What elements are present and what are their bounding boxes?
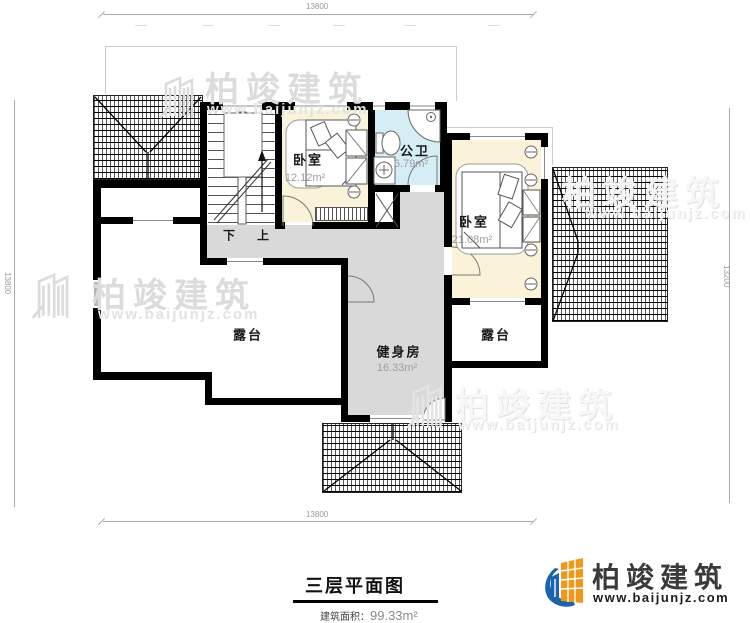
area-summary-value: 99.33m² xyxy=(370,608,418,623)
wall-segment xyxy=(312,222,375,229)
wall-segment xyxy=(341,415,370,422)
wall-segment xyxy=(101,217,133,224)
wall-segment xyxy=(541,133,548,147)
watermark-building-icon xyxy=(30,262,74,320)
window xyxy=(373,102,385,110)
dim-line-top xyxy=(103,14,533,15)
cabinet-striped xyxy=(315,207,368,221)
watermark-brand: 柏竣建筑 xyxy=(92,268,256,317)
wall-segment xyxy=(205,398,348,405)
dim-subtick xyxy=(333,25,345,26)
dim-line-left xyxy=(14,100,15,507)
hallway-floor xyxy=(400,192,444,225)
wall-segment xyxy=(200,258,227,265)
dim-subtick xyxy=(488,25,500,26)
wall-segment xyxy=(93,372,212,380)
dim-subtick xyxy=(404,25,416,26)
window xyxy=(470,133,525,140)
bedroom1-area: 12.12m² xyxy=(285,172,325,184)
roof-right xyxy=(552,167,668,322)
dim-subtick xyxy=(202,25,214,26)
terrace-right-label: 露台 xyxy=(481,325,511,344)
wall-segment xyxy=(275,222,285,229)
watermark-url: www.baijunjz.com xyxy=(98,306,259,323)
stair-treads xyxy=(208,114,275,224)
eave-line xyxy=(447,127,553,128)
watermark-building-icon xyxy=(158,66,198,120)
window xyxy=(541,147,548,179)
wall-segment xyxy=(275,102,282,229)
window xyxy=(223,102,262,110)
watermark-brand: 柏竣建筑 xyxy=(455,378,619,427)
eave-line xyxy=(456,46,457,101)
dim-line-right xyxy=(729,108,730,503)
eave-line xyxy=(552,127,553,165)
terrace-left-label: 露台 xyxy=(233,325,263,344)
stair-down-label: 下 xyxy=(223,227,237,244)
bathroom-label: 公卫 xyxy=(400,141,430,160)
stair-up-label: 上 xyxy=(257,227,271,244)
window xyxy=(295,102,347,110)
door-panel xyxy=(94,282,100,306)
window xyxy=(410,102,435,110)
dim-tick xyxy=(530,518,537,525)
logo-url: www.baijunjz.com xyxy=(593,590,729,605)
dim-top-label: 13800 xyxy=(306,2,328,11)
wall-segment xyxy=(93,308,101,380)
gym-label: 健身房 xyxy=(376,342,421,361)
dim-left-label: 13800 xyxy=(3,272,12,294)
eave-line xyxy=(105,46,457,47)
wall-segment xyxy=(541,179,548,305)
dim-right-label: 13200 xyxy=(722,265,731,287)
dim-subtick xyxy=(135,25,147,26)
wall-segment xyxy=(93,180,205,188)
bathroom-area: 6.79m² xyxy=(394,158,428,170)
window xyxy=(470,298,525,305)
wall-segment xyxy=(444,298,472,305)
area-summary: 建筑面积：99.33m² xyxy=(320,608,418,623)
wall-segment xyxy=(444,361,548,368)
bedroom2-area: 21.08m² xyxy=(452,234,492,246)
wall-segment xyxy=(368,222,400,229)
wall-segment xyxy=(263,258,348,265)
wall-segment xyxy=(368,185,410,192)
wall-segment xyxy=(523,298,548,305)
floorplan-canvas: 13800 13800 13800 13200 xyxy=(0,0,750,623)
gym-area: 16.33m² xyxy=(377,362,417,374)
bedroom2-label: 卧室 xyxy=(459,212,489,231)
dim-tick xyxy=(530,11,537,18)
watermark-building-icon xyxy=(405,374,447,430)
wall-segment xyxy=(541,305,548,368)
logo-building-icon xyxy=(543,555,589,609)
wall-segment xyxy=(368,102,375,229)
area-summary-label: 建筑面积： xyxy=(320,612,370,623)
sheet-title: 三层平面图 xyxy=(305,572,405,598)
dim-bottom-label: 13800 xyxy=(306,510,328,519)
bedroom1-label: 卧室 xyxy=(293,150,323,169)
dim-line-bottom xyxy=(103,521,533,522)
hallway-floor xyxy=(207,225,444,258)
roof-bottom xyxy=(322,423,462,493)
wall-segment xyxy=(93,180,101,280)
wall-segment xyxy=(444,133,452,247)
watermark-url: www.baijunjz.com xyxy=(458,416,619,433)
window xyxy=(227,258,263,265)
title-underline xyxy=(293,600,438,603)
wall-segment xyxy=(173,217,205,224)
window xyxy=(133,217,173,224)
dim-subtick xyxy=(268,25,280,26)
eave-line xyxy=(105,46,106,94)
wall-segment xyxy=(444,133,472,140)
